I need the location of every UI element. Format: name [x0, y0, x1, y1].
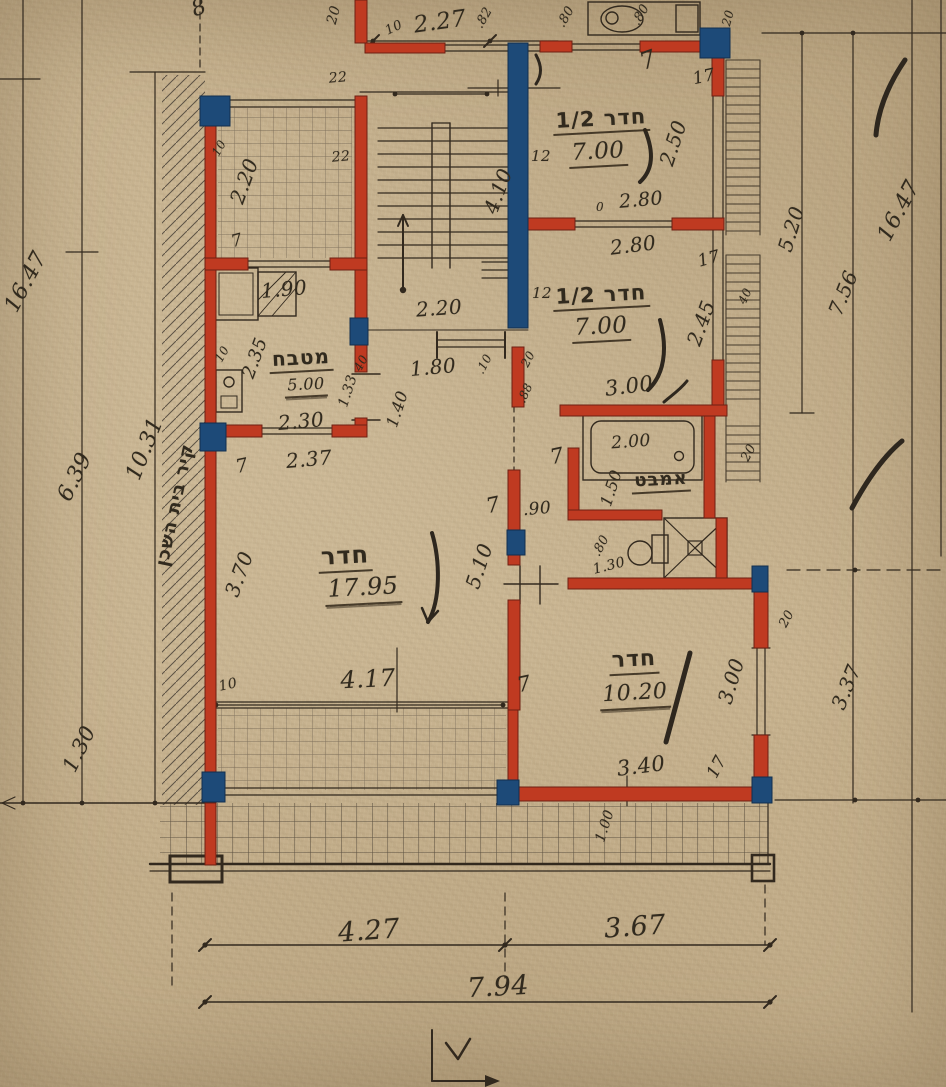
dim-label: 7.56: [823, 267, 863, 319]
dim-label: 5.00: [284, 373, 328, 398]
dim-label: 16.47: [873, 176, 926, 245]
dim-label: 2.80: [609, 230, 658, 259]
dim-label: 1.30: [58, 722, 101, 776]
dim-label: 20: [324, 4, 344, 26]
dim-label: .80: [589, 533, 613, 559]
room-label: חדר 1/2: [552, 104, 650, 136]
dim-label: 20: [719, 8, 737, 27]
dim-label: 3.67: [603, 909, 667, 944]
dim-label: 2.45: [682, 297, 720, 349]
dim-label: 5.10: [460, 540, 497, 591]
dim-label: 7: [548, 443, 566, 469]
dim-label: .90: [522, 498, 552, 520]
dim-label: 7: [484, 492, 502, 518]
dim-label: .88: [514, 381, 535, 405]
dim-label: 3.00: [604, 371, 655, 401]
dim-label: 17: [696, 246, 723, 271]
dim-label: 22: [328, 69, 348, 87]
dim-label: 20: [738, 442, 759, 464]
dim-label: .80: [629, 2, 653, 28]
dim-label: 3.37: [826, 661, 866, 713]
room-label: מטבח: [268, 344, 333, 374]
dim-label: 0: [596, 200, 604, 214]
dim-label: 2.00: [611, 431, 652, 454]
dim-label: 2.20: [225, 155, 263, 207]
dim-label: 10: [383, 18, 405, 39]
dim-label: 4.27: [337, 913, 401, 948]
dim-label: 7: [234, 454, 251, 478]
dim-label: 10.20: [599, 679, 671, 712]
dim-label: 7: [515, 671, 533, 697]
dim-label: 1.90: [260, 275, 308, 303]
dim-label: 3.40: [616, 751, 667, 781]
dim-label: 1.80: [409, 353, 457, 381]
room-label: חדר: [608, 646, 660, 677]
dim-label: 10.31: [121, 414, 169, 484]
dim-label: 10: [212, 344, 232, 365]
annotation-labels: 816.476.3910.31קיר בית השכן1.3020102.27.…: [0, 0, 946, 1087]
dim-label: 2.50: [654, 117, 691, 168]
dim-label: 1.33: [335, 373, 360, 409]
room-label: אמבט: [631, 467, 692, 494]
room-label: חדר: [317, 540, 373, 574]
dim-label: 10: [209, 138, 229, 159]
dim-label: .82: [472, 5, 496, 31]
dim-label: 17: [691, 65, 717, 89]
dim-label: 7.94: [466, 970, 529, 1004]
dim-label: 7: [229, 230, 245, 252]
dim-label: .10: [473, 352, 495, 376]
dim-label: 12: [531, 147, 551, 165]
dim-label: 20: [776, 608, 797, 630]
dim-label: 16.47: [0, 247, 52, 316]
dim-label: 3.70: [220, 548, 258, 600]
dim-label: 12: [532, 284, 552, 302]
dim-label: 17: [703, 752, 731, 781]
dim-label: 1.30: [591, 554, 627, 577]
dim-label: 2.20: [415, 294, 463, 321]
dim-label: 7.00: [568, 137, 628, 169]
dim-label: 3.00: [713, 655, 749, 706]
dim-label: 2.80: [618, 187, 664, 213]
dim-label: 20: [518, 349, 538, 370]
dim-label: 10: [217, 675, 239, 695]
dim-label: 17.95: [324, 571, 402, 607]
dim-label: 40: [351, 353, 371, 374]
room-label: קיר בית השכן: [152, 442, 199, 569]
dim-label: 2.37: [285, 445, 333, 473]
dim-label: 4.17: [340, 664, 396, 695]
dim-label: 5.20: [773, 203, 809, 254]
dim-label: 7.00: [571, 312, 631, 344]
dim-label: 1.40: [382, 388, 412, 429]
dim-label: 22: [331, 148, 351, 166]
dim-label: 1.50: [596, 467, 626, 508]
floor-plan-sheet: 816.476.3910.31קיר בית השכן1.3020102.27.…: [0, 0, 946, 1087]
dim-label: 8: [188, 0, 210, 22]
dim-label: 4.10: [479, 165, 517, 217]
room-label: חדר 1/2: [552, 280, 650, 312]
dim-label: 6.39: [53, 449, 98, 505]
dim-label: 1.00: [592, 808, 617, 844]
dim-label: 7: [636, 44, 660, 76]
dim-label: 2.27: [412, 5, 468, 38]
dim-label: .80: [554, 4, 578, 30]
dim-label: 2.30: [277, 407, 325, 435]
dim-label: 2.35: [238, 335, 272, 381]
dim-label: 40: [735, 286, 754, 306]
